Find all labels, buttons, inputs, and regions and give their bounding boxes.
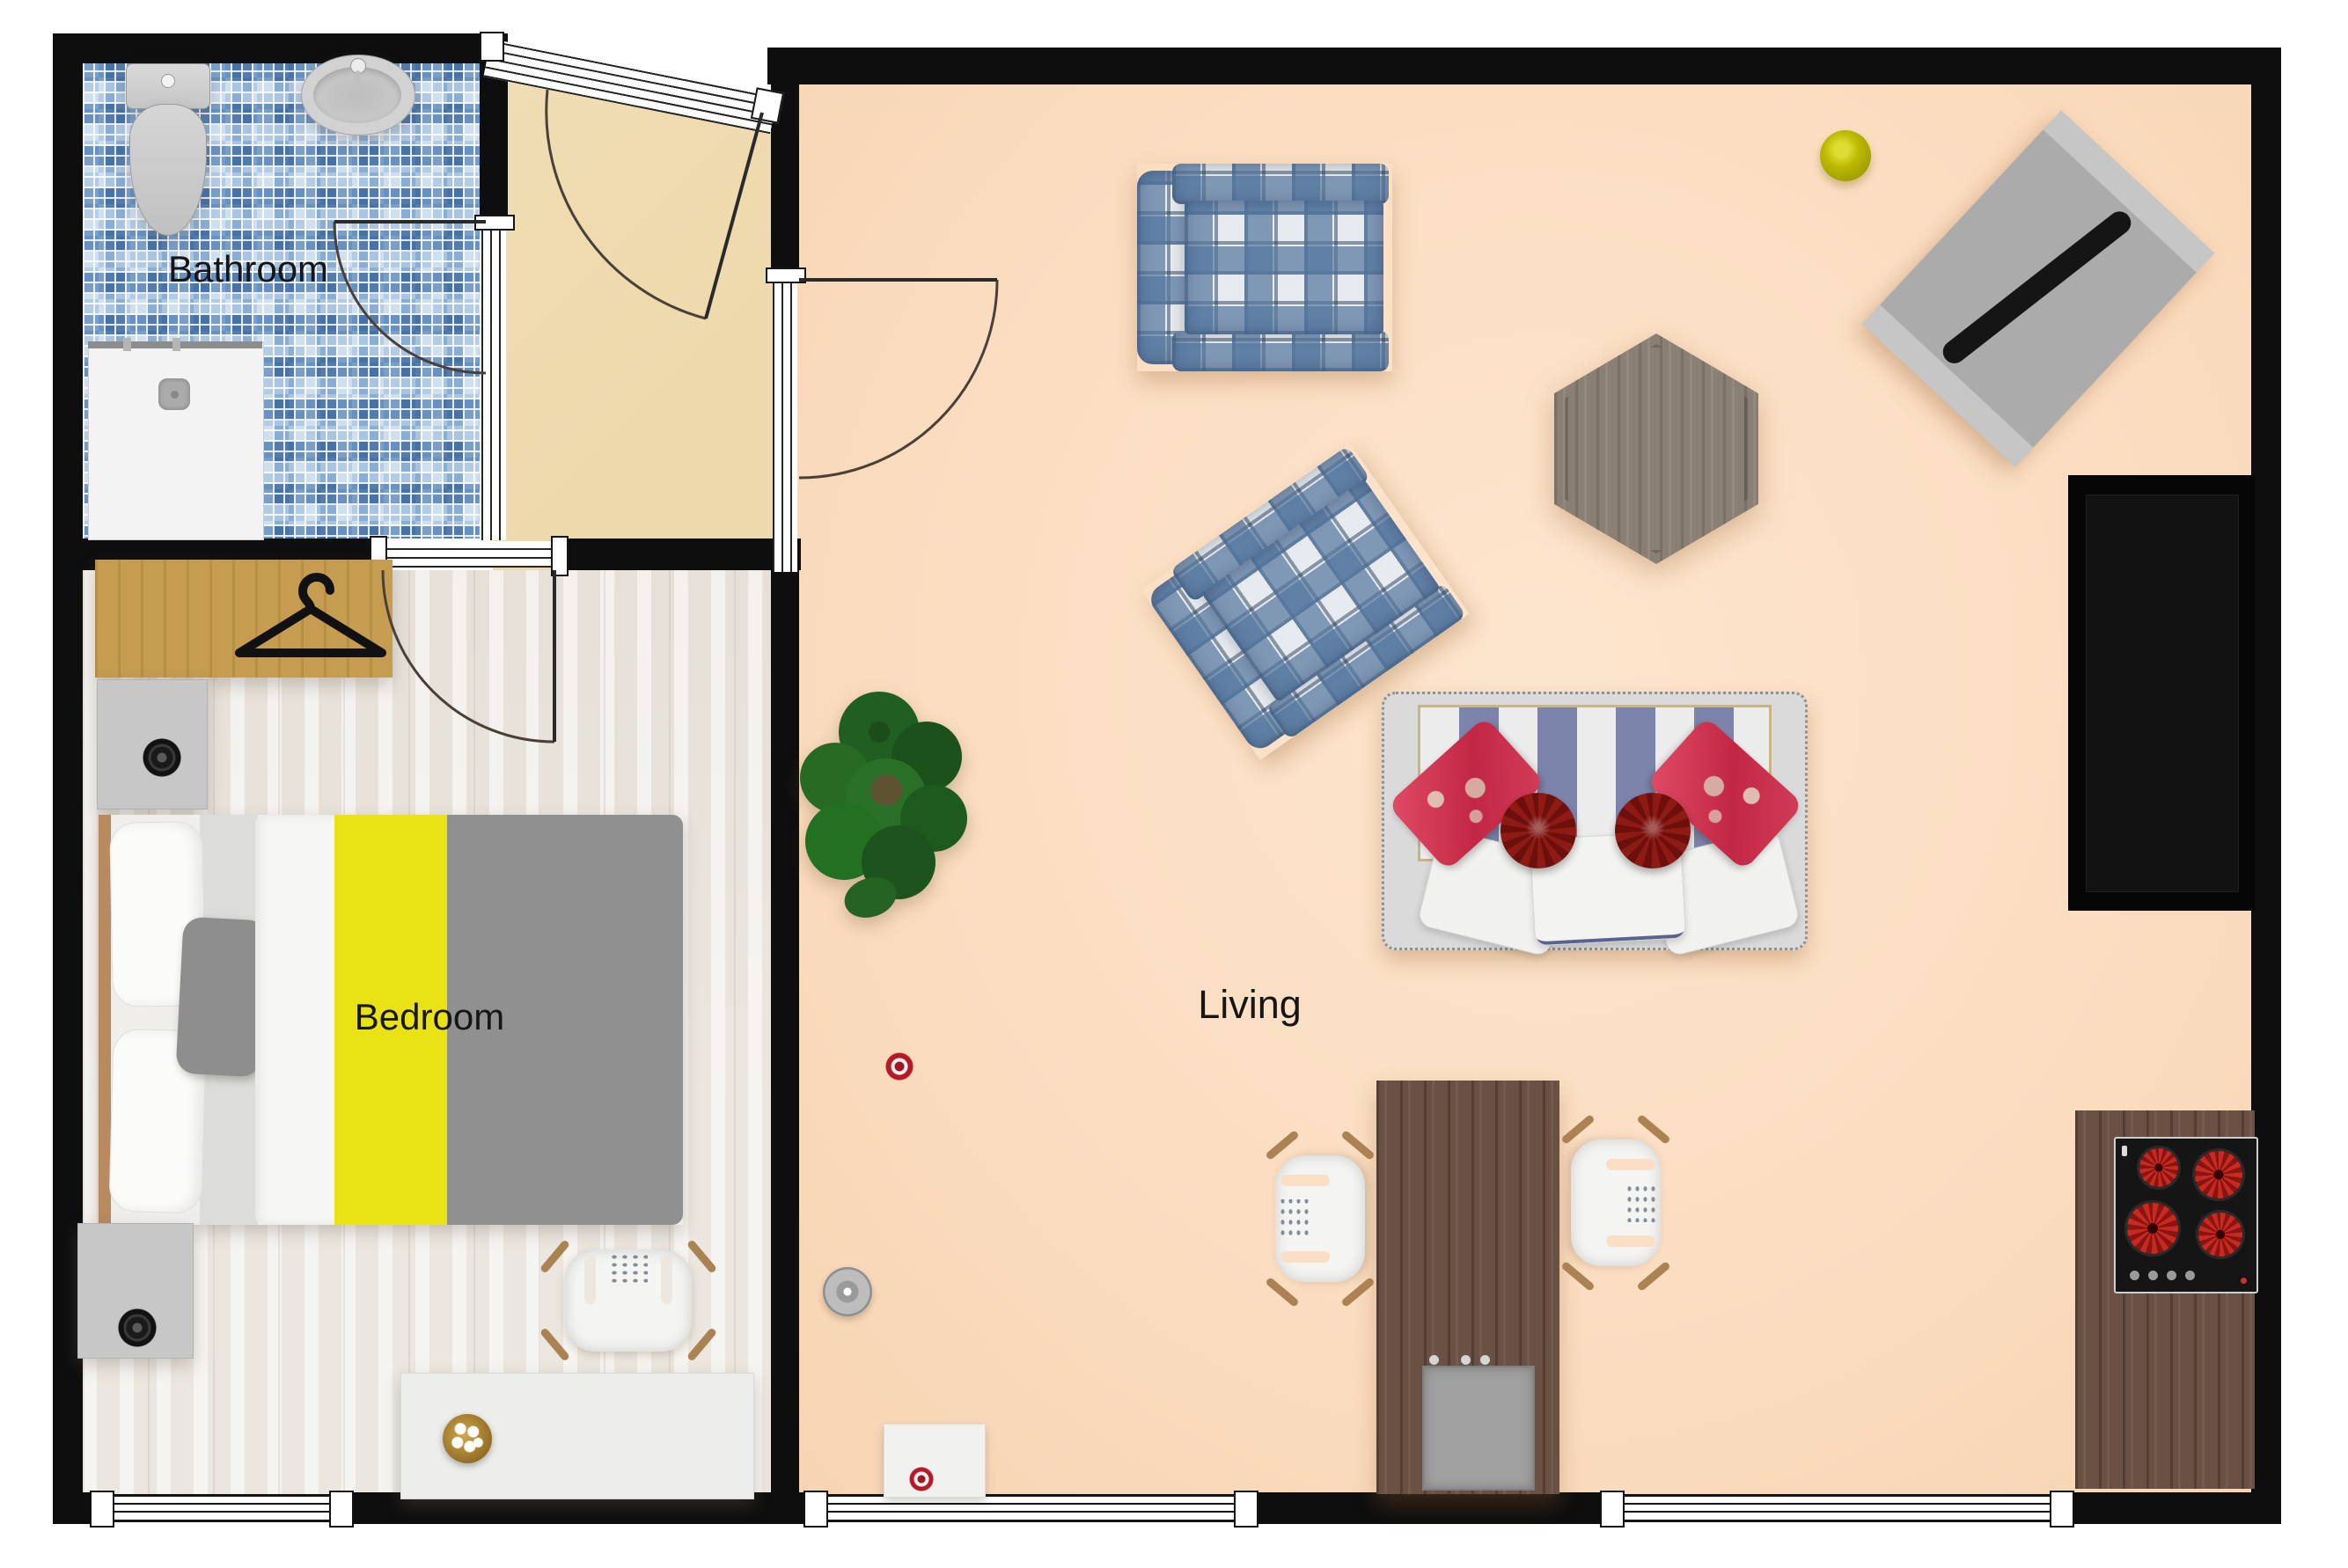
speaker-disc-icon bbox=[141, 736, 183, 779]
shower-glass-tick bbox=[123, 338, 131, 351]
speaker-disc-icon bbox=[117, 1308, 158, 1348]
living-doorframe bbox=[773, 278, 797, 572]
table-sink bbox=[1422, 1366, 1535, 1491]
chair-perforation bbox=[609, 1253, 648, 1286]
yellow-ball[interactable] bbox=[1820, 130, 1871, 181]
sofa[interactable] bbox=[1382, 692, 1808, 950]
shower-tray[interactable] bbox=[88, 341, 264, 540]
burner bbox=[2198, 1213, 2242, 1257]
kitchen-counter[interactable] bbox=[2075, 1110, 2255, 1489]
shower-drain-dot bbox=[171, 391, 179, 399]
red-ring-decor bbox=[885, 1052, 914, 1081]
bed-gray-pillow bbox=[175, 917, 268, 1078]
burner bbox=[2139, 1148, 2178, 1187]
chair-back-slot bbox=[1280, 1175, 1330, 1186]
chair-perforation bbox=[1279, 1199, 1312, 1238]
dining-chair-left[interactable] bbox=[1268, 1143, 1372, 1294]
room-label-living: Living bbox=[1100, 982, 1399, 1028]
white-floor-box[interactable] bbox=[884, 1424, 986, 1498]
wall-top-living bbox=[767, 48, 2281, 84]
bathroom-doorframe bbox=[481, 225, 506, 540]
doorframe-cap bbox=[480, 32, 504, 62]
doorframe-cap bbox=[474, 215, 515, 231]
doorframe-cap bbox=[751, 87, 784, 123]
gold-bowl bbox=[443, 1414, 492, 1463]
desk[interactable] bbox=[400, 1373, 754, 1499]
cooktop-indicator bbox=[2122, 1146, 2127, 1156]
wall-bottom-1 bbox=[53, 1492, 93, 1524]
toilet-flush-button bbox=[161, 74, 175, 88]
box-red-ring bbox=[909, 1467, 934, 1491]
gray-disc-decor bbox=[823, 1267, 872, 1316]
wardrobe[interactable] bbox=[95, 560, 393, 678]
armchair-seat bbox=[1185, 201, 1383, 334]
wall-bottom-4 bbox=[2071, 1492, 2281, 1524]
bedroom-window[interactable] bbox=[93, 1494, 350, 1522]
cooktop-indicator bbox=[2241, 1278, 2247, 1284]
hexagon-coffee-table[interactable] bbox=[1554, 333, 1758, 564]
black-counter-niche[interactable] bbox=[2068, 475, 2255, 911]
bedroom-desk-chair[interactable] bbox=[553, 1242, 704, 1359]
cooktop[interactable] bbox=[2114, 1137, 2258, 1293]
niche-inner-panel bbox=[2086, 495, 2239, 892]
sink-spout bbox=[356, 70, 360, 93]
doorframe-cap bbox=[551, 536, 569, 576]
potted-plant[interactable] bbox=[795, 686, 990, 931]
burner bbox=[2195, 1151, 2242, 1198]
sink-faucet bbox=[1429, 1355, 1439, 1365]
hanger-icon bbox=[227, 568, 394, 665]
chair-back-slot bbox=[1606, 1235, 1655, 1247]
shower-glass-tick bbox=[172, 338, 180, 351]
doorframe-cap bbox=[766, 267, 806, 283]
nightstand-top[interactable] bbox=[97, 679, 208, 810]
armchair-arm bbox=[1172, 331, 1389, 371]
room-label-bathroom: Bathroom bbox=[99, 248, 398, 290]
dining-table[interactable] bbox=[1376, 1081, 1559, 1494]
wall-bedroom-top-b bbox=[553, 539, 801, 570]
cooktop-knob bbox=[2148, 1271, 2158, 1280]
dining-chair-right[interactable] bbox=[1564, 1127, 1668, 1279]
black-board-icon bbox=[1939, 207, 2136, 368]
wall-top-bathroom bbox=[53, 33, 490, 63]
sink-faucet bbox=[1461, 1355, 1471, 1365]
plaid-armchair-1[interactable] bbox=[1137, 164, 1392, 371]
burner bbox=[2127, 1203, 2178, 1254]
cooktop-knob bbox=[2167, 1271, 2176, 1280]
chair-back-slot bbox=[584, 1255, 596, 1304]
round-red-pillow bbox=[1615, 793, 1691, 868]
chair-back-slot bbox=[661, 1255, 672, 1304]
armchair-arm bbox=[1172, 164, 1389, 204]
sink-faucet bbox=[1480, 1355, 1490, 1365]
chair-back-slot bbox=[1280, 1251, 1330, 1263]
living-window-left[interactable] bbox=[807, 1494, 1255, 1522]
cooktop-knob bbox=[2185, 1271, 2195, 1280]
nightstand-bottom[interactable] bbox=[77, 1223, 194, 1359]
chair-back-slot bbox=[1606, 1159, 1655, 1170]
bedroom-doorframe bbox=[382, 541, 553, 568]
wall-bottom-3 bbox=[1255, 1492, 1603, 1524]
cooktop-knob bbox=[2130, 1271, 2139, 1280]
wall-right bbox=[2251, 48, 2281, 1524]
floor-plan: Bathroom Bedroom Living bbox=[0, 0, 2348, 1568]
round-red-pillow bbox=[1501, 793, 1576, 868]
room-label-bedroom: Bedroom bbox=[280, 996, 579, 1038]
living-window-right[interactable] bbox=[1603, 1494, 2071, 1522]
wall-bedroom-living bbox=[771, 539, 799, 1494]
chair-perforation bbox=[1624, 1183, 1657, 1222]
